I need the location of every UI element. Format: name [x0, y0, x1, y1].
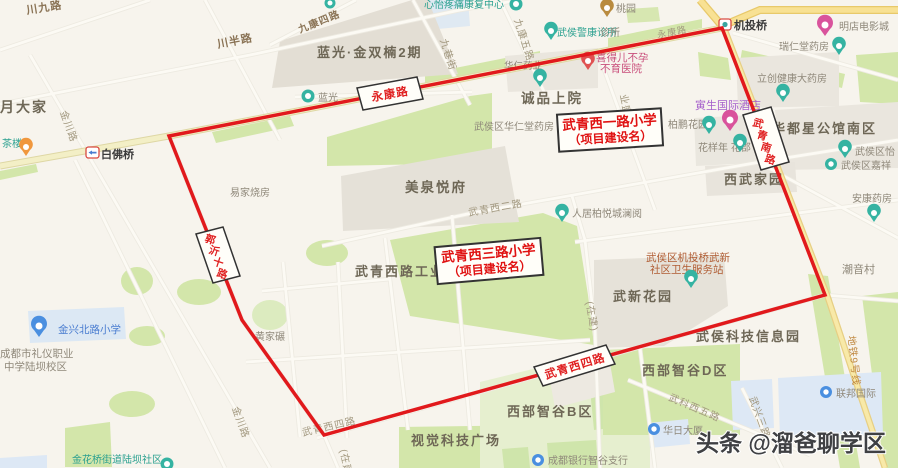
svg-text:美泉悦府: 美泉悦府 — [405, 179, 467, 195]
svg-text:武侯区机投桥武新: 武侯区机投桥武新 — [646, 251, 730, 264]
svg-text:瑞仁堂药房: 瑞仁堂药房 — [779, 40, 829, 53]
svg-text:安康药房: 安康药房 — [852, 192, 892, 205]
svg-text:不育医院: 不育医院 — [600, 62, 642, 75]
svg-text:武侯区华仁堂药房: 武侯区华仁堂药房 — [474, 120, 554, 133]
svg-text:武侯区怡: 武侯区怡 — [855, 145, 895, 158]
svg-text:金兴北路小学: 金兴北路小学 — [58, 323, 121, 336]
svg-text:心怡疼痛康复中心: 心怡疼痛康复中心 — [424, 0, 504, 11]
svg-text:机投桥: 机投桥 — [734, 18, 768, 32]
svg-text:成都银行智谷支行: 成都银行智谷支行 — [548, 454, 628, 467]
svg-text:中学陆坝校区: 中学陆坝校区 — [4, 360, 67, 373]
svg-text:武侯区嘉祥: 武侯区嘉祥 — [841, 159, 891, 172]
svg-text:茶楼: 茶楼 — [2, 137, 22, 150]
svg-text:视觉科技广场: 视觉科技广场 — [411, 433, 501, 448]
svg-text:潮音村: 潮音村 — [842, 262, 875, 276]
svg-text:联邦国际: 联邦国际 — [836, 387, 876, 400]
svg-text:桃园: 桃园 — [616, 2, 636, 15]
svg-text:武新花园: 武新花园 — [613, 289, 673, 304]
svg-text:黄家碾: 黄家碾 — [255, 330, 285, 343]
svg-text:明店电影城: 明店电影城 — [839, 20, 889, 33]
svg-text:人居柏悦城澜阅: 人居柏悦城澜阅 — [572, 207, 642, 220]
svg-text:华都星公馆南区: 华都星公馆南区 — [772, 121, 877, 136]
svg-text:立创健康大药房: 立创健康大药房 — [757, 72, 827, 85]
svg-text:西武家园: 西武家园 — [724, 172, 784, 187]
svg-text:金花桥街道陆坝社区: 金花桥街道陆坝社区 — [72, 453, 162, 466]
svg-text:易家烧房: 易家烧房 — [230, 186, 270, 199]
svg-text:诚品上院: 诚品上院 — [521, 90, 583, 106]
svg-text:西部智谷B区: 西部智谷B区 — [507, 404, 593, 419]
svg-text:武侯科技信息园: 武侯科技信息园 — [696, 329, 801, 344]
svg-text:西部智谷D区: 西部智谷D区 — [642, 363, 728, 378]
svg-text:蓝光·金双楠2期: 蓝光·金双楠2期 — [317, 45, 423, 60]
svg-text:头条 @溜爸聊学区: 头条 @溜爸聊学区 — [696, 430, 886, 456]
svg-text:成都市礼仪职业: 成都市礼仪职业 — [0, 347, 74, 360]
svg-text:白佛桥: 白佛桥 — [101, 147, 135, 161]
svg-text:柏鹏花园: 柏鹏花园 — [668, 118, 708, 131]
svg-text:月大家: 月大家 — [0, 99, 48, 115]
svg-text:诊所: 诊所 — [600, 26, 620, 39]
